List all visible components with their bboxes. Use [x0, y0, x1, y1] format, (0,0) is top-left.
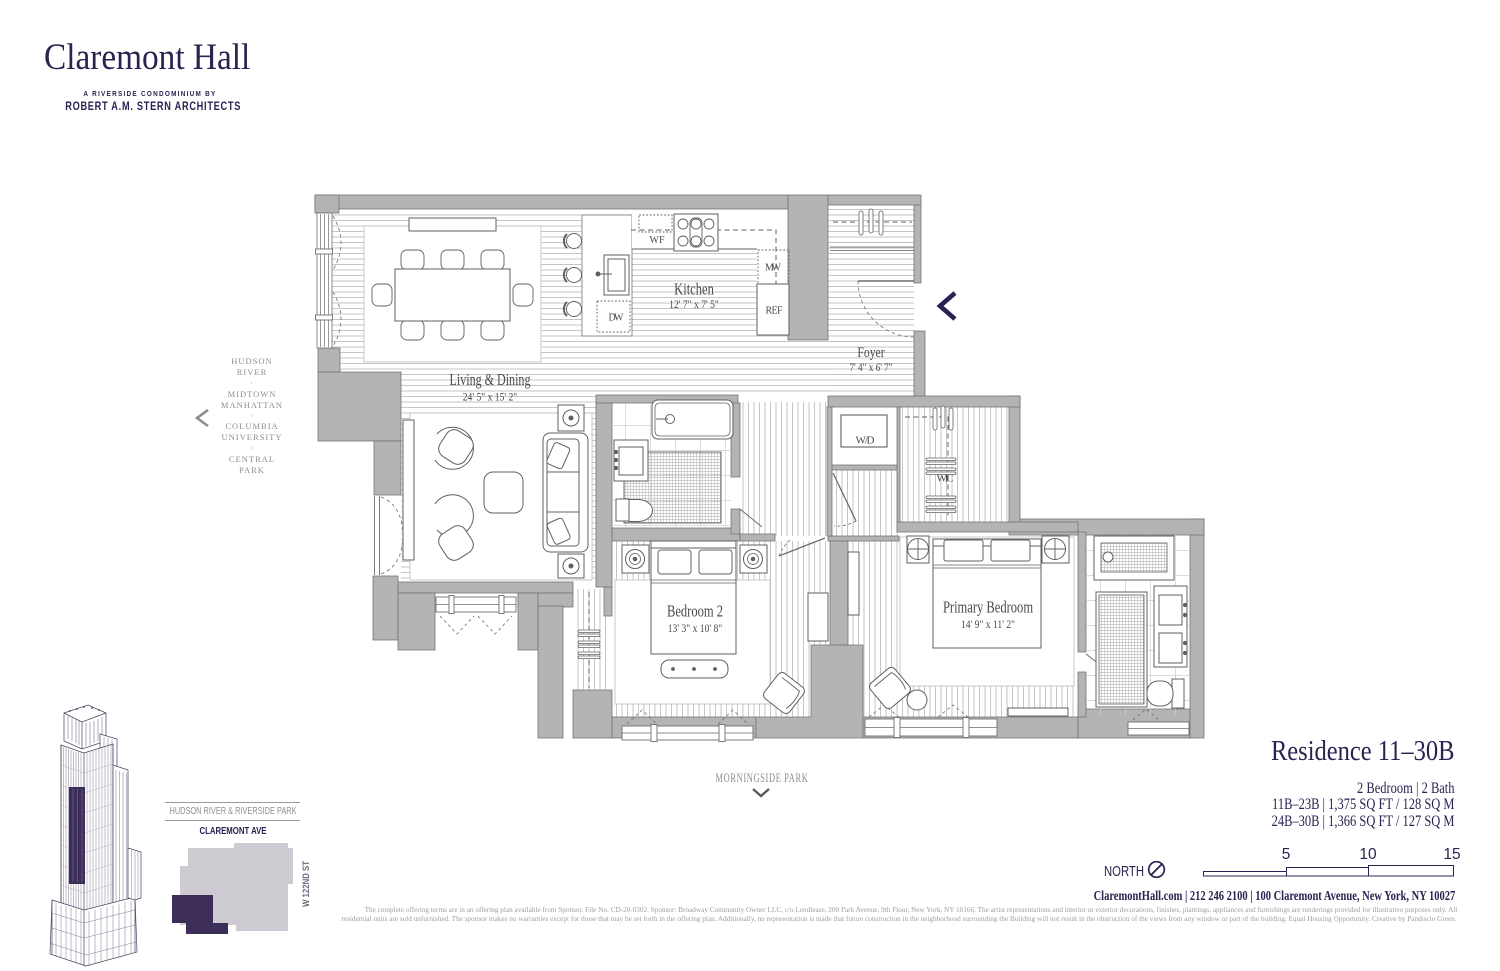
svg-text:13' 3" x 10' 8": 13' 3" x 10' 8"	[668, 622, 722, 635]
svg-text:Living & Dining: Living & Dining	[450, 371, 531, 389]
svg-text:DW: DW	[609, 313, 625, 324]
svg-text:WIC: WIC	[937, 473, 954, 485]
svg-text:10: 10	[1359, 846, 1377, 863]
svg-text:MW: MW	[765, 263, 782, 274]
svg-text:Foyer: Foyer	[857, 344, 885, 361]
svg-text:NORTH: NORTH	[1104, 863, 1144, 880]
svg-text:12' 7" x 7' 5": 12' 7" x 7' 5"	[669, 298, 719, 311]
svg-text:5: 5	[1282, 846, 1291, 863]
svg-text:REF: REF	[766, 306, 783, 317]
svg-text:Bedroom 2: Bedroom 2	[667, 603, 723, 621]
svg-text:HUDSON RIVER & RIVERSIDE PARK: HUDSON RIVER & RIVERSIDE PARK	[170, 806, 297, 817]
svg-text:14' 9" x 11' 2": 14' 9" x 11' 2"	[961, 618, 1015, 631]
svg-text:7' 4" x 6' 7": 7' 4" x 6' 7"	[850, 362, 893, 374]
svg-text:Kitchen: Kitchen	[674, 281, 714, 299]
svg-text:CLAREMONT AVE: CLAREMONT AVE	[200, 826, 267, 837]
svg-text:Primary Bedroom: Primary Bedroom	[943, 599, 1034, 617]
svg-text:W 122ND ST: W 122ND ST	[301, 861, 312, 907]
svg-text:WF: WF	[650, 235, 665, 246]
svg-text:MORNINGSIDE PARK: MORNINGSIDE PARK	[716, 770, 809, 785]
svg-text:15: 15	[1443, 846, 1460, 863]
svg-text:24' 5" x 15' 2": 24' 5" x 15' 2"	[463, 391, 517, 404]
svg-text:W/D: W/D	[856, 435, 875, 447]
